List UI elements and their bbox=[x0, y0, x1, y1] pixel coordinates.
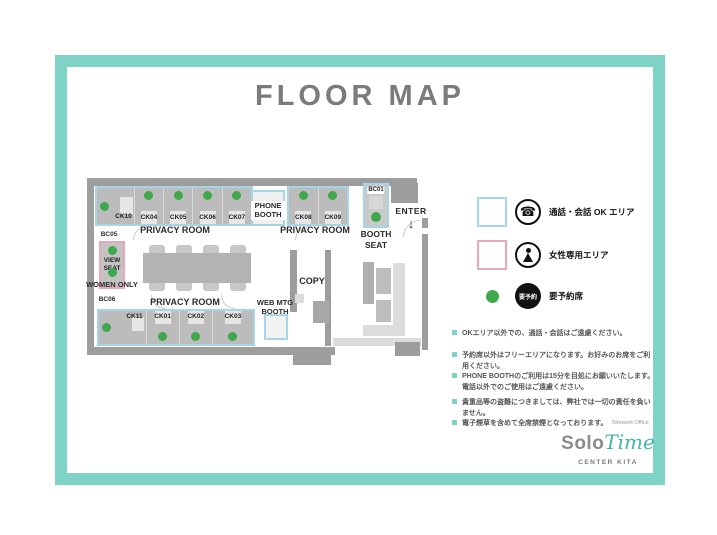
room-label: CK01 bbox=[154, 314, 171, 321]
counter-horizontal bbox=[363, 325, 405, 336]
wall-bottom-right-block bbox=[395, 342, 420, 356]
reserved-seat-dot bbox=[144, 191, 153, 200]
wall-bottom-block bbox=[293, 347, 331, 365]
note-bullet bbox=[452, 420, 457, 425]
note-text: 電子煙草を含めて全席禁煙となっております。 bbox=[462, 419, 608, 430]
note-bullet bbox=[452, 399, 457, 404]
reserved-seat-dot bbox=[108, 268, 117, 277]
privacy-room-bottom-box: CK11 CK01 CK02 CK03 bbox=[97, 309, 255, 346]
desk bbox=[120, 197, 133, 214]
room-ck10: CK10 bbox=[97, 188, 135, 224]
privacy-room-label: PRIVACY ROOM bbox=[125, 225, 225, 236]
logo-time-text: Time bbox=[604, 430, 655, 454]
reserved-badge-icon: 要予約 bbox=[515, 283, 541, 309]
privacy-room-label: PRIVACY ROOM bbox=[135, 297, 235, 308]
room-label: CK06 bbox=[199, 215, 216, 222]
call-ok-swatch bbox=[477, 197, 507, 227]
room-label: CK11 bbox=[126, 314, 142, 321]
note-item: 予約席以外はフリーエリアになります。お好みのお席をご利用ください。 bbox=[452, 351, 657, 373]
reserved-seat-dot bbox=[158, 332, 167, 341]
room-label: CK07 bbox=[229, 215, 246, 222]
room-ck05: CK05 bbox=[164, 188, 193, 224]
privacy-room-top-left-box: CK10 CK04 CK05 CK06 CK07 bbox=[95, 186, 253, 226]
room-label: CK08 bbox=[295, 215, 312, 222]
web-mtg-booth bbox=[264, 314, 288, 340]
female-icon bbox=[515, 242, 541, 268]
room-label: CK05 bbox=[170, 215, 187, 222]
room-label: CK04 bbox=[141, 215, 158, 222]
reserved-seat-dot bbox=[108, 246, 117, 255]
copy-label: COPY bbox=[287, 276, 337, 287]
room-ck03: CK03 bbox=[213, 311, 253, 344]
room-label: CK09 bbox=[324, 215, 341, 222]
bc06-label: BC06 bbox=[87, 296, 127, 304]
women-only-swatch bbox=[477, 240, 507, 270]
note-item: 貴重品等の盗難につきましては、弊社では一切の責任を負いません。 bbox=[452, 398, 657, 420]
counter-vertical bbox=[393, 263, 405, 326]
booth-id-label: BC01 bbox=[367, 187, 384, 194]
room-label: CK02 bbox=[187, 314, 204, 321]
copy-machine bbox=[313, 301, 329, 323]
wall-right bbox=[422, 234, 428, 350]
room-ck04: CK04 bbox=[135, 188, 164, 224]
reserved-seat-dot bbox=[228, 332, 237, 341]
room-ck11: CK11 bbox=[99, 311, 147, 344]
legend-label: 女性専用エリア bbox=[549, 249, 609, 261]
note-item: OKエリア以外での、通話・会話はご遠慮ください。 bbox=[452, 329, 657, 340]
note-bullet bbox=[452, 373, 457, 378]
enter-arrow-icon: ↓ bbox=[390, 216, 432, 232]
room-label: CK10 bbox=[115, 214, 132, 221]
room-ck08: CK08 bbox=[289, 188, 319, 224]
note-text: OKエリア以外での、通話・会話はご遠慮ください。 bbox=[462, 329, 627, 340]
shared-table bbox=[143, 253, 251, 283]
note-item: PHONE BOOTHのご利用は15分を目処にお願いいたします。 電話以外でのご… bbox=[452, 372, 657, 394]
room-ck02: CK02 bbox=[180, 311, 213, 344]
note-text: 貴重品等の盗難につきましては、弊社では一切の責任を負いません。 bbox=[462, 398, 657, 420]
legend-label: 要予約席 bbox=[549, 290, 583, 302]
room-ck01: CK01 bbox=[147, 311, 180, 344]
reserved-seat-dot bbox=[174, 191, 183, 200]
phone-booth-label: PHONE BOOTH bbox=[251, 201, 285, 220]
wall-copy-right bbox=[325, 250, 331, 346]
booth-seat-shape bbox=[369, 196, 383, 209]
logo-office-type: Telework Office bbox=[608, 420, 652, 427]
logo-solo-text: Solo bbox=[561, 433, 604, 454]
note-bullet bbox=[452, 330, 457, 335]
note-bullet bbox=[452, 352, 457, 357]
reserved-seat-dot bbox=[328, 191, 337, 200]
room-ck09: CK09 bbox=[319, 188, 348, 224]
floor-plan: CK10 CK04 CK05 CK06 CK07 PRIVACY ROOM PH… bbox=[85, 168, 437, 368]
reserved-seat-dot bbox=[371, 212, 381, 222]
room-ck07: CK07 bbox=[223, 188, 251, 224]
privacy-room-top-right-box: CK08 CK09 bbox=[287, 186, 349, 226]
note-text: 電話以外でのご使用はご遠慮ください。 bbox=[462, 383, 654, 394]
booth-seat-bc01: BC01 bbox=[363, 183, 389, 228]
room-ck06: CK06 bbox=[193, 188, 222, 224]
reserved-seat-dot bbox=[232, 191, 241, 200]
note-text: PHONE BOOTHのご利用は15分を目処にお願いいたします。 bbox=[462, 372, 654, 383]
reserved-seat-dot bbox=[102, 323, 111, 332]
reserved-dot-swatch bbox=[486, 290, 499, 303]
room-label: CK03 bbox=[225, 314, 242, 321]
reserved-seat-dot bbox=[191, 332, 200, 341]
wall-bc01-block bbox=[391, 183, 418, 203]
copy-side-table bbox=[295, 294, 304, 303]
counter-seat bbox=[376, 268, 391, 294]
solotime-logo: SoloTime bbox=[556, 430, 660, 455]
wall-left bbox=[87, 178, 94, 350]
note-text: 予約席以外はフリーエリアになります。お好みのお席をご利用ください。 bbox=[462, 351, 657, 373]
web-mtg-booth-label: WEB MTG BOOTH bbox=[255, 298, 295, 317]
phone-icon bbox=[515, 199, 541, 225]
reserved-seat-dot bbox=[203, 191, 212, 200]
women-only-label: WOMEN ONLY bbox=[78, 280, 146, 289]
reserved-seat-dot bbox=[299, 191, 308, 200]
legend-call-ok: 通話・会話 OK エリア bbox=[477, 197, 634, 227]
legend-label: 通話・会話 OK エリア bbox=[549, 206, 634, 218]
legend-women-only: 女性専用エリア bbox=[477, 240, 609, 270]
reserved-seat-dot bbox=[100, 202, 109, 211]
bc05-label: BC05 bbox=[89, 231, 129, 239]
page-title: FLOOR MAP bbox=[55, 80, 665, 113]
counter-seat bbox=[376, 300, 391, 322]
legend-reserved: 要予約 要予約席 bbox=[477, 283, 583, 309]
privacy-room-label: PRIVACY ROOM bbox=[265, 225, 365, 236]
bench bbox=[363, 262, 374, 304]
logo-location: CENTER KITA bbox=[556, 459, 660, 466]
